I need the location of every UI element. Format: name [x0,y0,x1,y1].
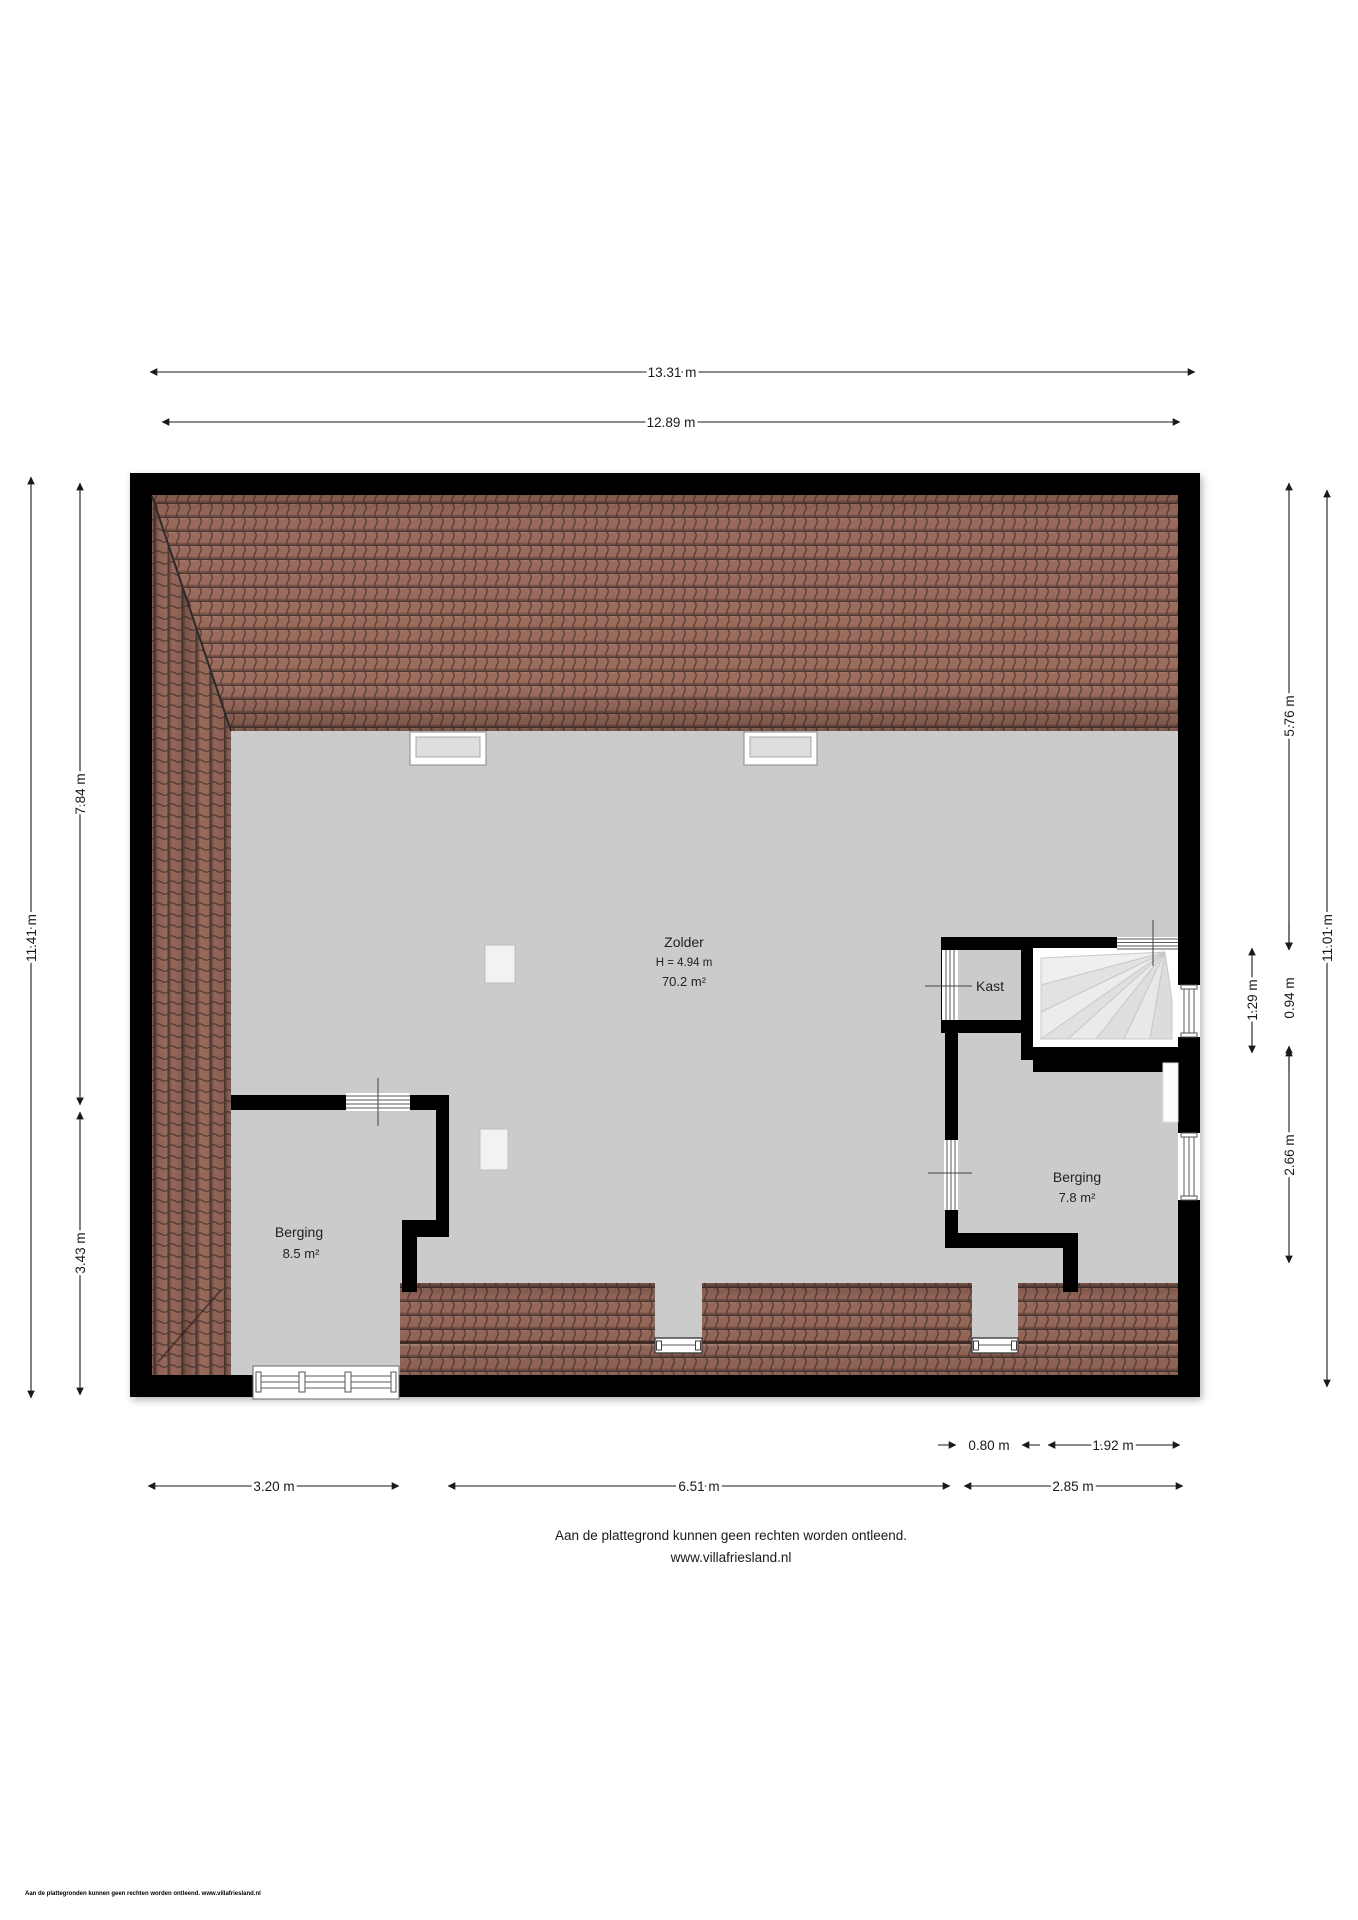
chimney-column-lower [480,1129,508,1170]
dim-top-outer: 13.31 m [150,365,1195,380]
svg-text:12.89 m: 12.89 m [647,415,696,430]
right-wall-window-berging [1178,1133,1200,1200]
zolder-height-label: H = 4.94 m [656,957,713,969]
kast-label: Kast [976,978,1004,994]
svg-text:11.01 m: 11.01 m [1320,914,1335,962]
dim-left-total: 11.41 m [24,477,39,1398]
svg-text:2.66 m: 2.66 m [1282,1134,1297,1175]
stairwell-bottom-wall [1033,1047,1178,1072]
dim-left-upper: 7.84 m [73,483,88,1105]
svg-text:13.31 m: 13.31 m [648,365,697,380]
berging-left-bottom-window [253,1366,399,1399]
svg-text:7.84 m: 7.84 m [73,773,88,814]
svg-text:1.92 m: 1.92 m [1092,1438,1133,1453]
zolder-label-group: Zolder H = 4.94 m 70.2 m² [656,934,713,989]
dim-bottom-middle: 6.51 m [448,1479,950,1494]
dormer-window-left [655,1338,702,1353]
dim-right-upper: 5.76 m [1282,483,1297,950]
zolder-label: Zolder [664,934,704,950]
stair-railing [1117,937,1178,950]
dim-right-stairwell: 1.29 m [1245,948,1260,1053]
svg-text:11.41 m: 11.41 m [24,914,39,962]
dim-bottom-stair: 1.92 m [1048,1438,1180,1453]
roof-window-left [410,732,486,765]
dim-right-berging: 2.66 m [1282,1049,1297,1263]
dim-top-inner: 12.89 m [162,415,1180,430]
stairs [1041,952,1172,1039]
roof-window-right [744,732,817,765]
berging-right-area-label: 7.8 m² [1059,1190,1097,1205]
dim-bottom-right: 2.85 m [964,1479,1183,1494]
floorplan-drawing: Zolder H = 4.94 m 70.2 m² Kast Berging 8… [0,0,1358,1920]
fineprint-text: Aan de plattegronden kunnen geen rechten… [25,1891,261,1897]
dim-bottom-dormer: 0.80 m [938,1438,1040,1453]
floorplan-page: Zolder H = 4.94 m 70.2 m² Kast Berging 8… [0,0,1358,1920]
chimney-column-upper [485,945,515,983]
berging-left-area-label: 8.5 m² [283,1246,321,1261]
berging-right-window [944,1140,958,1210]
dormer-window-right [972,1338,1018,1353]
kast-window [942,950,958,1020]
right-wall-window-stair [1178,985,1200,1037]
svg-text:6.51 m: 6.51 m [678,1479,719,1494]
svg-text:0.80 m: 0.80 m [968,1438,1009,1453]
svg-text:2.85 m: 2.85 m [1052,1479,1093,1494]
svg-text:5.76 m: 5.76 m [1282,695,1297,736]
berging-left-label: Berging [275,1224,323,1240]
svg-text:3.20 m: 3.20 m [253,1479,294,1494]
svg-text:0.94 m: 0.94 m [1282,977,1297,1018]
dim-left-lower: 3.43 m [73,1112,88,1395]
berging-right-door [1163,1063,1178,1122]
svg-text:1.29 m: 1.29 m [1245,979,1260,1020]
website-text: www.villafriesland.nl [670,1550,792,1565]
svg-text:3.43 m: 3.43 m [73,1232,88,1273]
roof-band-top [152,495,1178,731]
zolder-area-label: 70.2 m² [662,974,707,989]
dim-right-total: 11.01 m [1320,490,1335,1387]
dim-bottom-left: 3.20 m [148,1479,399,1494]
berging-right-label: Berging [1053,1169,1101,1185]
disclaimer-text: Aan de plattegrond kunnen geen rechten w… [555,1528,907,1543]
roof-band-bottom [400,1283,1178,1375]
